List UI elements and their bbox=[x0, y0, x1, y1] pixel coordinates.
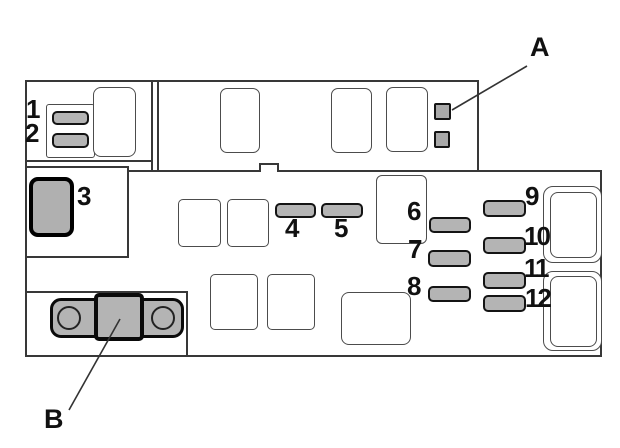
fuse-6-label: 6 bbox=[407, 198, 419, 224]
fusible-link-bolt-left bbox=[57, 306, 81, 330]
relay-slot-mid-1 bbox=[178, 199, 221, 247]
fuse-12 bbox=[483, 295, 526, 312]
fuse-7 bbox=[428, 250, 471, 267]
fuse-10-label: 10 bbox=[524, 223, 549, 249]
fuse-2 bbox=[52, 133, 89, 148]
fuse-12-label: 12 bbox=[525, 285, 550, 311]
fuse-9 bbox=[483, 200, 526, 217]
fuse-4-label: 4 bbox=[285, 215, 297, 241]
fuse-5-label: 5 bbox=[334, 215, 346, 241]
top-panel-divider-right bbox=[157, 81, 159, 170]
fuse-11 bbox=[483, 272, 526, 289]
relay-slot-top-3 bbox=[386, 87, 428, 152]
top-panel-divider-left bbox=[151, 81, 153, 170]
fuse-box-diagram: 1 2 3 4 5 6 7 8 9 10 11 12 A B bbox=[0, 0, 620, 448]
relay-slot-top-1 bbox=[220, 88, 260, 153]
component-a-terminal-lower bbox=[434, 131, 450, 148]
fuse-10 bbox=[483, 237, 526, 254]
panel-top-notch bbox=[259, 163, 279, 172]
fuse-6 bbox=[429, 217, 471, 233]
fuse-8-label: 8 bbox=[407, 273, 419, 299]
relay-slot-top-2 bbox=[331, 88, 372, 153]
fuse-9-label: 9 bbox=[525, 183, 537, 209]
fuse-8 bbox=[428, 286, 471, 302]
relay-slot-mid-2 bbox=[227, 199, 269, 247]
connector-upper-socket bbox=[550, 192, 597, 258]
connector-lower-socket bbox=[550, 276, 597, 347]
component-3-relay bbox=[29, 177, 74, 237]
callout-a-label: A bbox=[530, 34, 550, 61]
callout-b-label: B bbox=[44, 406, 64, 433]
relay-slot-low-2 bbox=[267, 274, 315, 330]
fuse-1 bbox=[52, 111, 89, 125]
fuse-7-label: 7 bbox=[408, 236, 420, 262]
fusible-link-b-block bbox=[94, 293, 144, 341]
fuse-2-label: 2 bbox=[25, 120, 37, 146]
relay-slot-top-left bbox=[93, 87, 136, 157]
component-3-label: 3 bbox=[77, 183, 89, 209]
relay-slot-bottom-mid bbox=[341, 292, 411, 345]
fuse-11-label: 11 bbox=[524, 255, 548, 281]
component-a-terminal-upper bbox=[434, 103, 451, 120]
relay-slot-low-1 bbox=[210, 274, 258, 330]
fusible-link-bolt-right bbox=[151, 306, 175, 330]
top-left-section-line bbox=[26, 160, 152, 162]
